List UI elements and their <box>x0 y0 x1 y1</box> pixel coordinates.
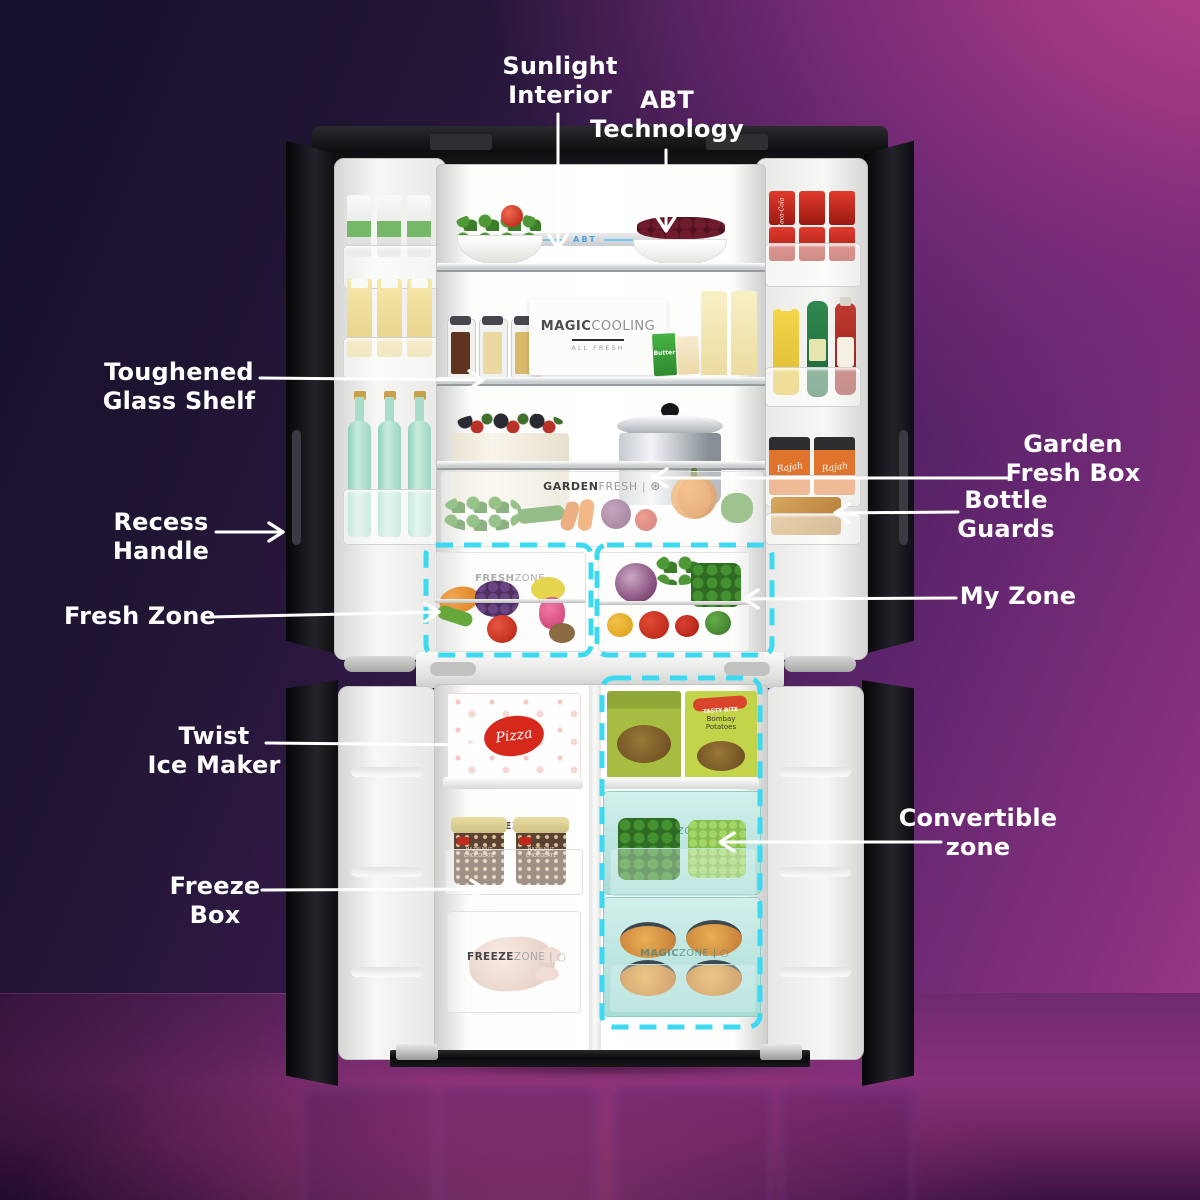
callout-convertible-zone: Convertible zone <box>868 804 1088 863</box>
annotated-fridge-diagram: Coca-Cola Rajah Rajah ABT <box>0 0 1200 1200</box>
callout-garden-fresh-box: Garden Fresh Box <box>963 430 1183 489</box>
callout-fresh-zone: Fresh Zone <box>30 602 250 631</box>
callout-recess-handle: Recess Handle <box>51 508 271 567</box>
callout-abt-technology: ABT Technology <box>557 86 777 145</box>
callout-bottle-guards: Bottle Guards <box>896 486 1116 545</box>
callout-twist-ice-maker: Twist Ice Maker <box>94 722 334 781</box>
callout-my-zone: My Zone <box>908 582 1128 611</box>
callout-toughened-glass-shelf: Toughened Glass Shelf <box>54 358 304 417</box>
fresh-zone-outline <box>426 545 591 655</box>
callout-freeze-box: Freeze Box <box>105 872 325 931</box>
convertible-zone-outline <box>602 678 760 1027</box>
